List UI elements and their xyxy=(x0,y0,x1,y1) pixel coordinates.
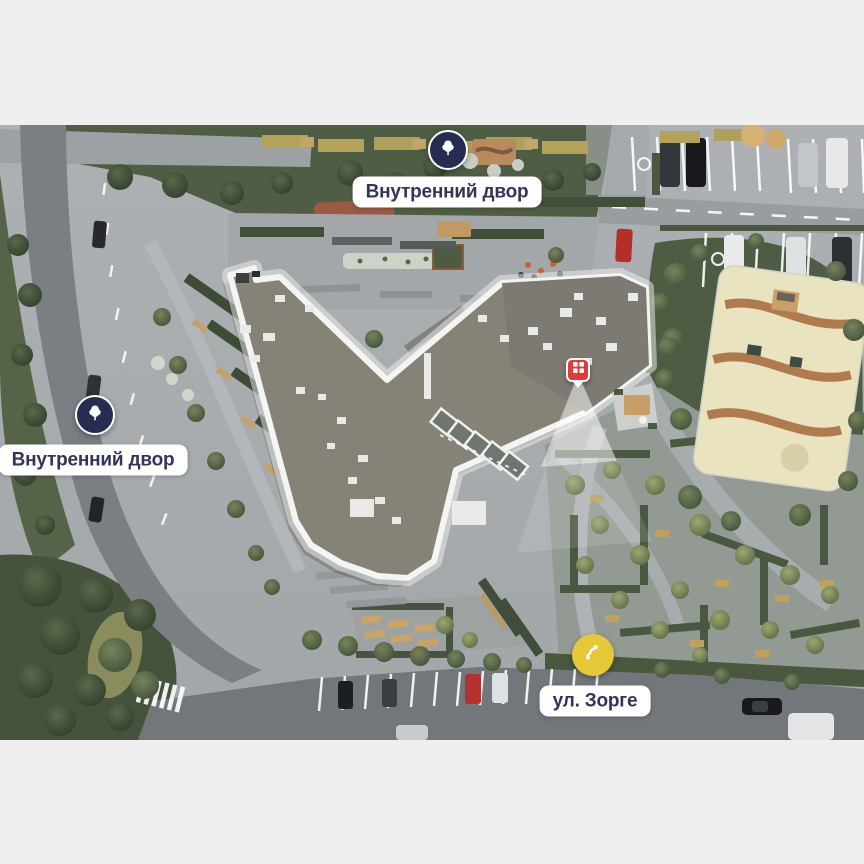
playground xyxy=(692,264,864,493)
aerial-site-plan xyxy=(0,125,864,740)
letterbox-top xyxy=(0,0,864,125)
courtyard-pin-top[interactable] xyxy=(428,130,468,170)
courtyard-pin-left[interactable] xyxy=(75,395,115,435)
courtyard-label-top[interactable]: Внутренний двор xyxy=(353,177,542,208)
street-pin[interactable] xyxy=(572,634,614,676)
building-window-icon xyxy=(572,361,585,379)
building-pin[interactable] xyxy=(566,358,590,382)
aerial-photo xyxy=(0,125,864,740)
courtyard-label-left[interactable]: Внутренний двор xyxy=(0,445,187,476)
route-icon xyxy=(581,641,605,670)
listing-photo-page: Внутренний двор Внутренний двор xyxy=(0,0,864,864)
letterbox-bottom xyxy=(0,740,864,864)
tree-icon xyxy=(437,137,459,164)
street-label[interactable]: ул. Зорге xyxy=(540,686,651,717)
tree-icon xyxy=(84,402,106,429)
